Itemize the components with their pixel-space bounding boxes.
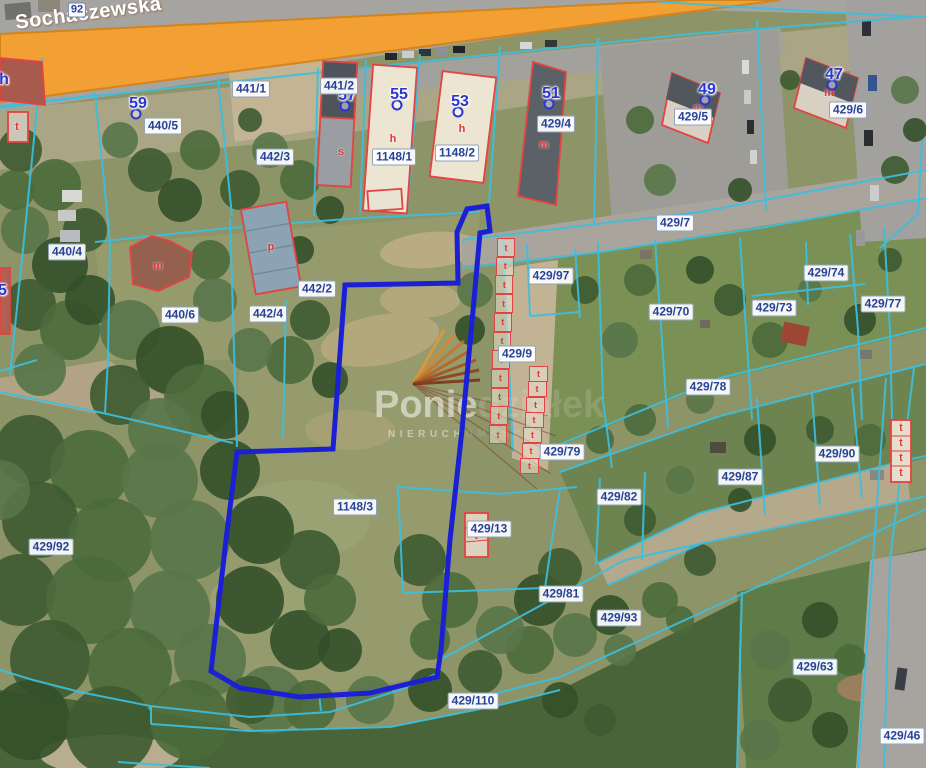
parcel-label-429-7: 429/7	[656, 215, 694, 232]
parcel-label-442-3: 442/3	[256, 149, 294, 166]
building-use-letter-m: m	[153, 260, 163, 272]
building-use-letter-h: h	[390, 133, 397, 145]
garage-box: t	[529, 366, 548, 382]
parcel-label-429-93: 429/93	[597, 610, 642, 627]
parcel-label-440-5: 440/5	[144, 118, 182, 135]
house-number-51: 51	[542, 85, 560, 103]
garage-box: t	[528, 381, 547, 397]
garage-box: t	[494, 313, 512, 332]
parcel-label-429-77: 429/77	[861, 296, 906, 313]
parcel-label-1148-3: 1148/3	[333, 499, 377, 516]
building-use-letter-h: h	[459, 123, 466, 135]
parcel-label-429-82: 429/82	[597, 489, 642, 506]
parcel-label-429-73: 429/73	[752, 300, 797, 317]
parcel-label-429-6: 429/6	[829, 102, 867, 119]
parcel-label-429-5: 429/5	[674, 109, 712, 126]
building-use-letter-p: p	[268, 241, 275, 253]
building-use-letter-t: t	[899, 452, 903, 464]
building-use-letter-t: t	[15, 121, 19, 133]
parcel-label-429-4: 429/4	[537, 116, 575, 133]
garage-box: t	[495, 294, 513, 313]
parcel-label-429-13: 429/13	[467, 521, 512, 538]
parcel-label-429-87: 429/87	[718, 469, 763, 486]
parcel-label-429-81: 429/81	[539, 586, 584, 603]
garage-box: t	[497, 238, 515, 257]
house-number-35: 35	[0, 282, 7, 300]
garage-box: t	[490, 406, 508, 425]
garage-box: t	[489, 425, 507, 444]
building-use-letter-s: s	[338, 146, 344, 158]
parcel-label-429-92: 429/92	[29, 539, 74, 556]
parcel-label-441-2: 441/2	[320, 78, 358, 95]
parcel-label-429-70: 429/70	[649, 304, 694, 321]
parcel-label-441-1: 441/1	[232, 81, 270, 98]
garage-box: t	[523, 427, 542, 443]
garage-box: t	[491, 369, 509, 388]
parcel-label-429-90: 429/90	[815, 446, 860, 463]
building-use-letter-t: t	[899, 422, 903, 434]
parcel-label-429-78: 429/78	[686, 379, 731, 396]
garage-box: t	[522, 443, 541, 459]
parcel-label-429-79: 429/79	[540, 444, 585, 461]
house-number-49: 49	[698, 81, 716, 99]
parcel-label-429-46: 429/46	[880, 728, 925, 745]
house-number-55: 55	[390, 86, 408, 104]
parcel-label-429-97: 429/97	[529, 268, 574, 285]
road-number-badge: 92	[68, 3, 86, 18]
garage-box: t	[496, 257, 514, 276]
building-use-letter-m: m	[539, 139, 549, 151]
house-number-47: 47	[825, 66, 843, 84]
parcel-label-440-4: 440/4	[48, 244, 86, 261]
building-use-letter-t: t	[899, 467, 903, 479]
house-number-59: 59	[129, 95, 147, 113]
cadastral-map[interactable]: Poniedziałek NIERUCHOMOŚCI Sochaczewska …	[0, 0, 926, 768]
parcel-label-442-4: 442/4	[249, 306, 287, 323]
building-use-letter-t: t	[899, 437, 903, 449]
garage-box: t	[525, 412, 544, 428]
garage-box: t	[495, 275, 513, 294]
parcel-label-1148-2: 1148/2	[435, 145, 479, 162]
garage-box: t	[491, 388, 509, 407]
garage-box: t	[526, 397, 545, 413]
parcel-label-429-110: 429/110	[448, 693, 499, 710]
house-number-53: 53	[451, 93, 469, 111]
parcel-label-429-74: 429/74	[804, 265, 849, 282]
house-number-h: h	[0, 71, 9, 89]
parcel-label-429-9: 429/9	[498, 346, 536, 363]
garage-box: t	[520, 458, 539, 474]
parcel-label-440-6: 440/6	[161, 307, 199, 324]
parcel-label-429-63: 429/63	[793, 659, 838, 676]
parcel-label-1148-1: 1148/1	[372, 149, 416, 166]
parcel-label-442-2: 442/2	[298, 281, 336, 298]
